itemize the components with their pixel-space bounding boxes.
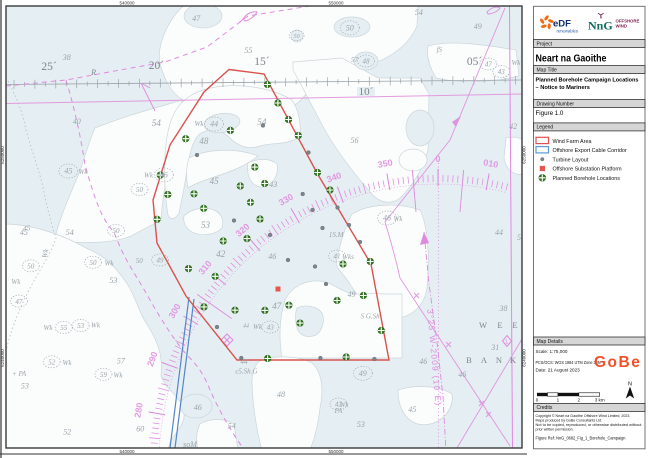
- svg-text:46: 46: [383, 214, 391, 223]
- svg-text:Maps produced by GoBe Consulta: Maps produced by GoBe Consultants Ltd.: [536, 419, 603, 423]
- svg-text:48: 48: [277, 390, 285, 399]
- svg-text:A: A: [481, 355, 488, 365]
- svg-text:60: 60: [136, 425, 144, 434]
- svg-text:540000: 540000: [119, 449, 135, 454]
- svg-text:43: 43: [267, 324, 275, 332]
- svg-text:46: 46: [160, 171, 168, 180]
- svg-text:53: 53: [77, 322, 85, 330]
- svg-text:41: 41: [334, 253, 341, 261]
- svg-text:Date: 21 August 2023: Date: 21 August 2023: [536, 368, 581, 373]
- svg-text:Wk: Wk: [195, 120, 205, 128]
- svg-text:44: 44: [243, 323, 249, 330]
- svg-text:PA: PA: [334, 407, 343, 415]
- svg-text:45: 45: [210, 176, 220, 186]
- svg-text:59: 59: [100, 371, 108, 379]
- svg-text:K: K: [510, 355, 517, 365]
- svg-text:46: 46: [458, 370, 466, 379]
- svg-text:W: W: [479, 320, 487, 330]
- svg-text:Wk: Wk: [144, 172, 154, 180]
- svg-text:44: 44: [495, 228, 503, 237]
- svg-text:Copyright © Neart na Gaoithe O: Copyright © Neart na Gaoithe Offshore Wi…: [536, 414, 631, 418]
- svg-text:57: 57: [117, 357, 126, 366]
- svg-text:Drawing Number: Drawing Number: [537, 101, 575, 107]
- svg-text:45: 45: [64, 167, 72, 176]
- svg-text:10´: 10´: [359, 86, 374, 98]
- svg-text:48: 48: [363, 58, 371, 66]
- svg-text:1S.M: 1S.M: [329, 231, 345, 239]
- svg-text:46: 46: [419, 357, 427, 366]
- svg-text:46: 46: [268, 252, 276, 261]
- svg-text:Wk: Wk: [63, 359, 73, 367]
- svg-text:53: 53: [357, 420, 365, 429]
- svg-text:45: 45: [23, 225, 31, 233]
- svg-text:50: 50: [294, 34, 300, 40]
- svg-text:43: 43: [498, 68, 506, 76]
- svg-text:Map Title: Map Title: [537, 67, 558, 73]
- svg-text:42: 42: [509, 122, 517, 131]
- svg-text:56: 56: [351, 136, 359, 145]
- svg-text:Neart na Gaoithe: Neart na Gaoithe: [536, 54, 607, 65]
- svg-text:3 km: 3 km: [595, 398, 605, 403]
- svg-text:N: N: [496, 355, 502, 365]
- svg-text:E: E: [512, 320, 517, 330]
- svg-text:47: 47: [15, 298, 23, 306]
- svg-text:550000: 550000: [328, 1, 344, 6]
- svg-text:Not to be copied, reproduced,: Not to be copied, reproduced, or otherwi…: [536, 423, 642, 427]
- svg-text:+ PA: + PA: [12, 370, 27, 378]
- svg-text:6250000: 6250000: [0, 146, 5, 164]
- svg-text:31: 31: [490, 343, 499, 352]
- svg-text:prior written permission.: prior written permission.: [536, 428, 574, 432]
- svg-text:49: 49: [157, 257, 165, 265]
- svg-text:54: 54: [257, 117, 267, 127]
- svg-text:GoBe: GoBe: [594, 354, 641, 371]
- svg-text:Wk: Wk: [11, 278, 21, 286]
- svg-text:6240000: 6240000: [0, 349, 5, 367]
- svg-text:1: 1: [557, 398, 560, 403]
- svg-text:6240000: 6240000: [522, 349, 527, 367]
- svg-text:Scale: 1:75,000: Scale: 1:75,000: [536, 349, 568, 354]
- svg-text:38: 38: [62, 53, 71, 62]
- svg-text:50: 50: [113, 227, 121, 235]
- svg-text:47: 47: [272, 301, 282, 311]
- svg-text:Project: Project: [537, 41, 553, 47]
- svg-text:55: 55: [244, 46, 252, 55]
- svg-text:05´: 05´: [467, 56, 483, 68]
- svg-text:47: 47: [485, 61, 493, 69]
- svg-text:50: 50: [346, 24, 354, 33]
- svg-text:49: 49: [348, 290, 356, 299]
- svg-text:45: 45: [408, 405, 416, 414]
- svg-text:50: 50: [136, 186, 144, 194]
- svg-text:20´: 20´: [149, 60, 165, 72]
- svg-text:50: 50: [136, 257, 144, 265]
- svg-text:52: 52: [63, 428, 71, 437]
- svg-text:55: 55: [60, 324, 68, 332]
- svg-text:– Notice to Mariners: – Notice to Mariners: [536, 85, 590, 91]
- svg-text:Figure 1.0: Figure 1.0: [536, 110, 564, 117]
- svg-text:Wk: Wk: [394, 215, 404, 223]
- svg-text:2: 2: [578, 398, 581, 403]
- svg-text:50: 50: [27, 263, 35, 271]
- svg-text:52: 52: [48, 359, 56, 367]
- svg-text:Wk: Wk: [91, 322, 101, 330]
- svg-text:54: 54: [228, 422, 236, 431]
- svg-text:54: 54: [415, 8, 423, 17]
- svg-text:Planned Borehole Campaign Loca: Planned Borehole Campaign Locations: [536, 78, 639, 84]
- svg-text:Planned Borehole Locations: Planned Borehole Locations: [553, 176, 621, 182]
- svg-text:48: 48: [199, 136, 209, 146]
- svg-text:fS: fS: [437, 46, 443, 54]
- svg-text:Wk: Wk: [79, 168, 89, 176]
- svg-text:42: 42: [216, 249, 226, 259]
- svg-text:53: 53: [21, 382, 29, 391]
- svg-text:53: 53: [109, 276, 117, 285]
- svg-text:E: E: [497, 320, 502, 330]
- svg-text:Figure Ref: NnG_0682_Fig_1_Bor: Figure Ref: NnG_0682_Fig_1_Borehole_Camp…: [536, 436, 627, 441]
- svg-text:44: 44: [210, 120, 218, 129]
- svg-text:Wk: Wk: [105, 260, 115, 268]
- svg-text:44: 44: [241, 358, 249, 366]
- svg-text:49: 49: [474, 22, 482, 31]
- svg-text:0: 0: [536, 398, 539, 403]
- svg-text:46: 46: [194, 403, 202, 412]
- svg-text:Offshore Export Cable Corridor: Offshore Export Cable Corridor: [553, 148, 627, 154]
- svg-text:550000: 550000: [328, 449, 344, 454]
- svg-text:c5.Sh.G: c5.Sh.G: [235, 368, 257, 376]
- svg-text:49: 49: [359, 369, 367, 378]
- svg-text:WIND: WIND: [616, 24, 627, 29]
- svg-text:Turbine Layout: Turbine Layout: [553, 157, 589, 163]
- svg-text:B: B: [466, 355, 472, 365]
- svg-text:S G.Sh: S G.Sh: [361, 313, 381, 321]
- svg-text:6250000: 6250000: [522, 146, 527, 164]
- svg-text:Wks: Wks: [342, 253, 354, 261]
- svg-text:Legend: Legend: [537, 125, 554, 131]
- svg-text:40: 40: [73, 117, 81, 126]
- svg-text:54: 54: [66, 228, 74, 237]
- svg-text:54: 54: [152, 118, 162, 128]
- svg-text:43: 43: [269, 180, 277, 189]
- svg-text:Wk: Wk: [253, 323, 263, 331]
- svg-text:NnG: NnG: [588, 19, 613, 33]
- svg-text:15´: 15´: [254, 56, 270, 68]
- svg-text:PCS/GCS: WGS 1984 UTM Zone 30N: PCS/GCS: WGS 1984 UTM Zone 30N: [536, 360, 601, 365]
- svg-text:Credits: Credits: [537, 405, 553, 411]
- svg-text:540000: 540000: [119, 1, 135, 6]
- svg-text:renewables: renewables: [557, 29, 578, 34]
- svg-text:53: 53: [201, 220, 211, 230]
- svg-text:25´: 25´: [41, 61, 57, 73]
- svg-text:Map Details: Map Details: [537, 339, 564, 345]
- svg-text:38: 38: [499, 304, 508, 313]
- svg-text:Wk: Wk: [44, 324, 54, 332]
- svg-text:50: 50: [90, 259, 98, 267]
- svg-text:Wk: Wk: [512, 59, 522, 67]
- svg-text:Wk: Wk: [114, 372, 124, 380]
- svg-text:Wind Farm Area: Wind Farm Area: [553, 139, 592, 145]
- svg-text:R: R: [90, 68, 96, 77]
- svg-text:47: 47: [192, 14, 201, 23]
- svg-text:Offshore Substation Platform: Offshore Substation Platform: [553, 167, 623, 173]
